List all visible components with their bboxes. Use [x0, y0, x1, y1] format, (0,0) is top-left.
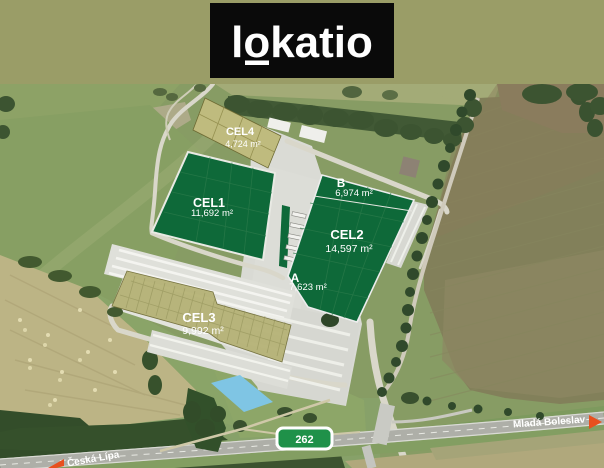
svg-text:262: 262 [295, 434, 313, 446]
svg-text:9,992 m²: 9,992 m² [182, 325, 224, 337]
svg-text:4,724 m²: 4,724 m² [225, 139, 261, 149]
svg-text:7,623 m²: 7,623 m² [289, 282, 327, 293]
svg-text:lokatio: lokatio [231, 18, 373, 67]
svg-text:14,597 m²: 14,597 m² [325, 243, 373, 255]
svg-text:CEL4: CEL4 [226, 126, 255, 138]
svg-text:6,974 m²: 6,974 m² [335, 188, 373, 199]
svg-text:CEL2: CEL2 [330, 227, 363, 242]
svg-text:11,692 m²: 11,692 m² [191, 208, 233, 219]
svg-text:CEL3: CEL3 [182, 310, 215, 325]
